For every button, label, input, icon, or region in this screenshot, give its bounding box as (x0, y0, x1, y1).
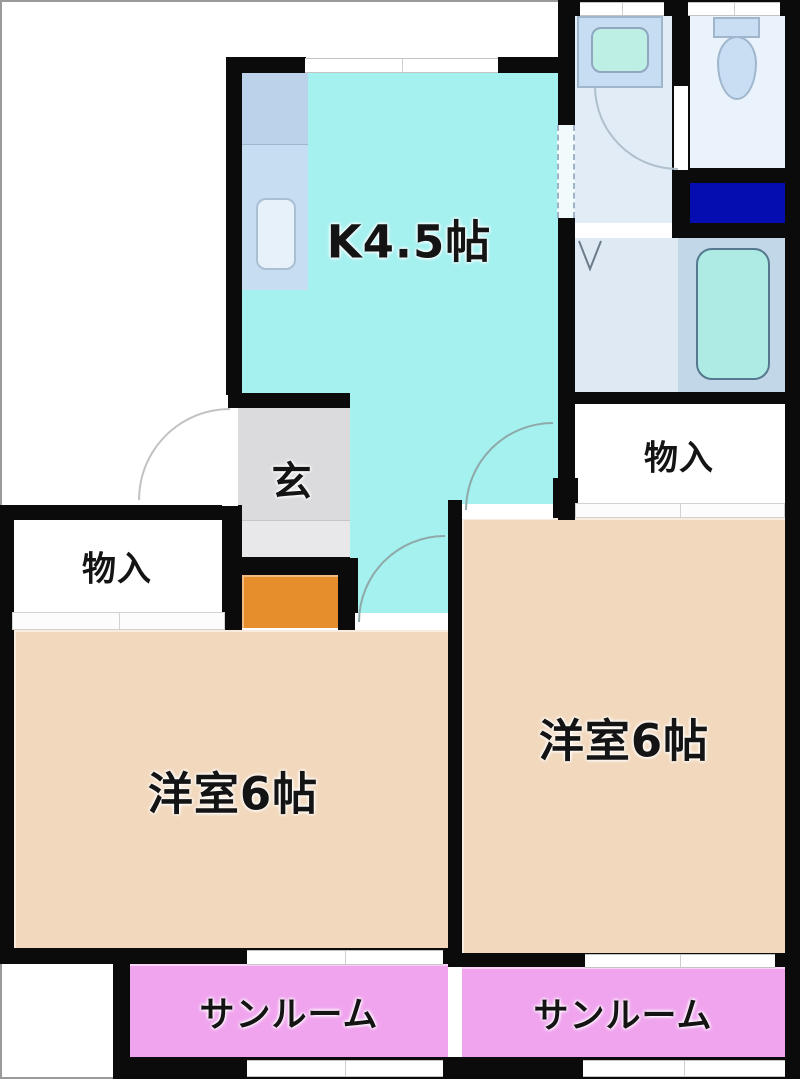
door-arc-entrance (138, 408, 230, 500)
western-room-left-label: 洋室6帖 (148, 758, 318, 823)
sliding-door-seam (119, 613, 120, 629)
entrance-step (242, 575, 338, 628)
wall-entrance-north (228, 393, 350, 408)
sunroom-right-label: サンルーム (534, 988, 713, 1039)
folding-door-icon (577, 239, 603, 273)
window-room-right-south (585, 954, 775, 968)
window-mullion (622, 3, 623, 15)
wall-kitchen-north-left (226, 57, 306, 73)
washing-machine-pan (688, 183, 785, 223)
wall-kitchen-west (226, 57, 242, 395)
western-room-right-label: 洋室6帖 (539, 705, 709, 770)
wall-storage-left-north (0, 505, 242, 520)
wall-outer-east (785, 0, 800, 1079)
sliding-door-kitchen-washroom (557, 125, 575, 218)
entrance-floor-lower (238, 520, 350, 558)
window-mullion (402, 59, 403, 72)
window-room-left-south (247, 950, 443, 965)
window-sunroom-left-south (247, 1060, 443, 1077)
kitchen-counter-upper (242, 73, 308, 145)
door-bathroom (575, 223, 672, 238)
wall-bath-north (672, 223, 785, 238)
wall-bath-west (558, 218, 575, 393)
wall-center (448, 500, 462, 967)
wall-outer-west (0, 505, 14, 964)
window-mullion (734, 3, 735, 15)
sliding-door-storage-left (12, 612, 225, 630)
sliding-door-seam (680, 504, 681, 517)
washbasin-bowl-icon (591, 27, 649, 73)
kitchen-label: K4.5帖 (327, 206, 492, 271)
floor-plan: K4.5帖 玄 物入 物入 洋室6帖 洋室6帖 サンルーム サンルーム (0, 0, 800, 1079)
wall-entrance-south (228, 557, 350, 575)
window-washbasin-north (580, 2, 664, 16)
window-toilet-north (688, 2, 780, 16)
storage-right-label: 物入 (644, 431, 714, 480)
wall-storage-left-east (222, 508, 242, 630)
sunroom-left-label: サンルーム (200, 987, 379, 1038)
kitchen-sink-icon (256, 198, 296, 270)
window-sunroom-right-south (583, 1060, 785, 1077)
wall-bath-south (558, 392, 800, 404)
toilet-tank-icon (713, 17, 760, 38)
entrance-label: 玄 (272, 449, 313, 507)
window-mullion (684, 1061, 685, 1076)
window-mullion (345, 951, 346, 964)
window-mullion (680, 955, 681, 967)
wall-washroom-west (558, 0, 575, 125)
window-mullion (345, 1061, 346, 1076)
storage-left-label: 物入 (82, 542, 152, 591)
window-kitchen-north (305, 58, 498, 73)
wall-toilet-south (672, 168, 785, 183)
sliding-door-storage-right (575, 503, 785, 518)
bathtub-icon (696, 248, 770, 380)
